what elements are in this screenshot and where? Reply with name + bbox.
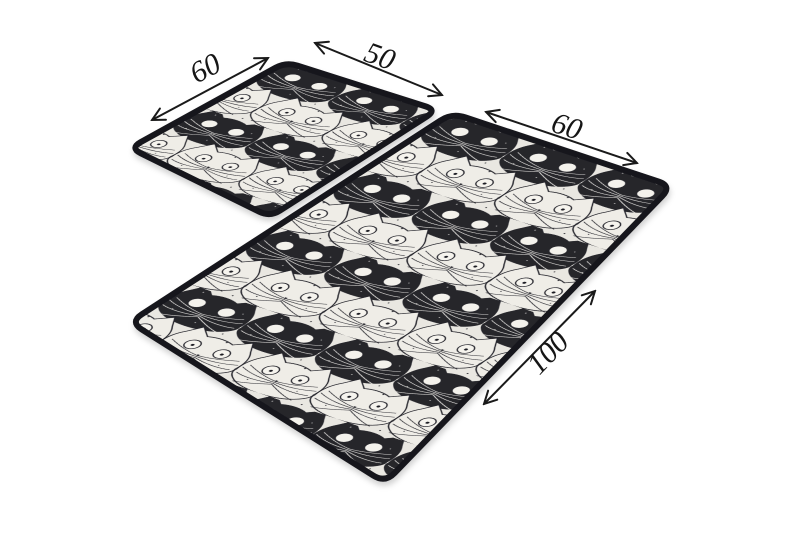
rug-set-product-photo: 60 50 60 100 (0, 0, 800, 533)
dimension-label-large-front: 60 (547, 106, 586, 147)
product-photo-stage: 60 50 60 100 (0, 0, 800, 533)
dimension-label-small-front: 50 (360, 36, 399, 77)
